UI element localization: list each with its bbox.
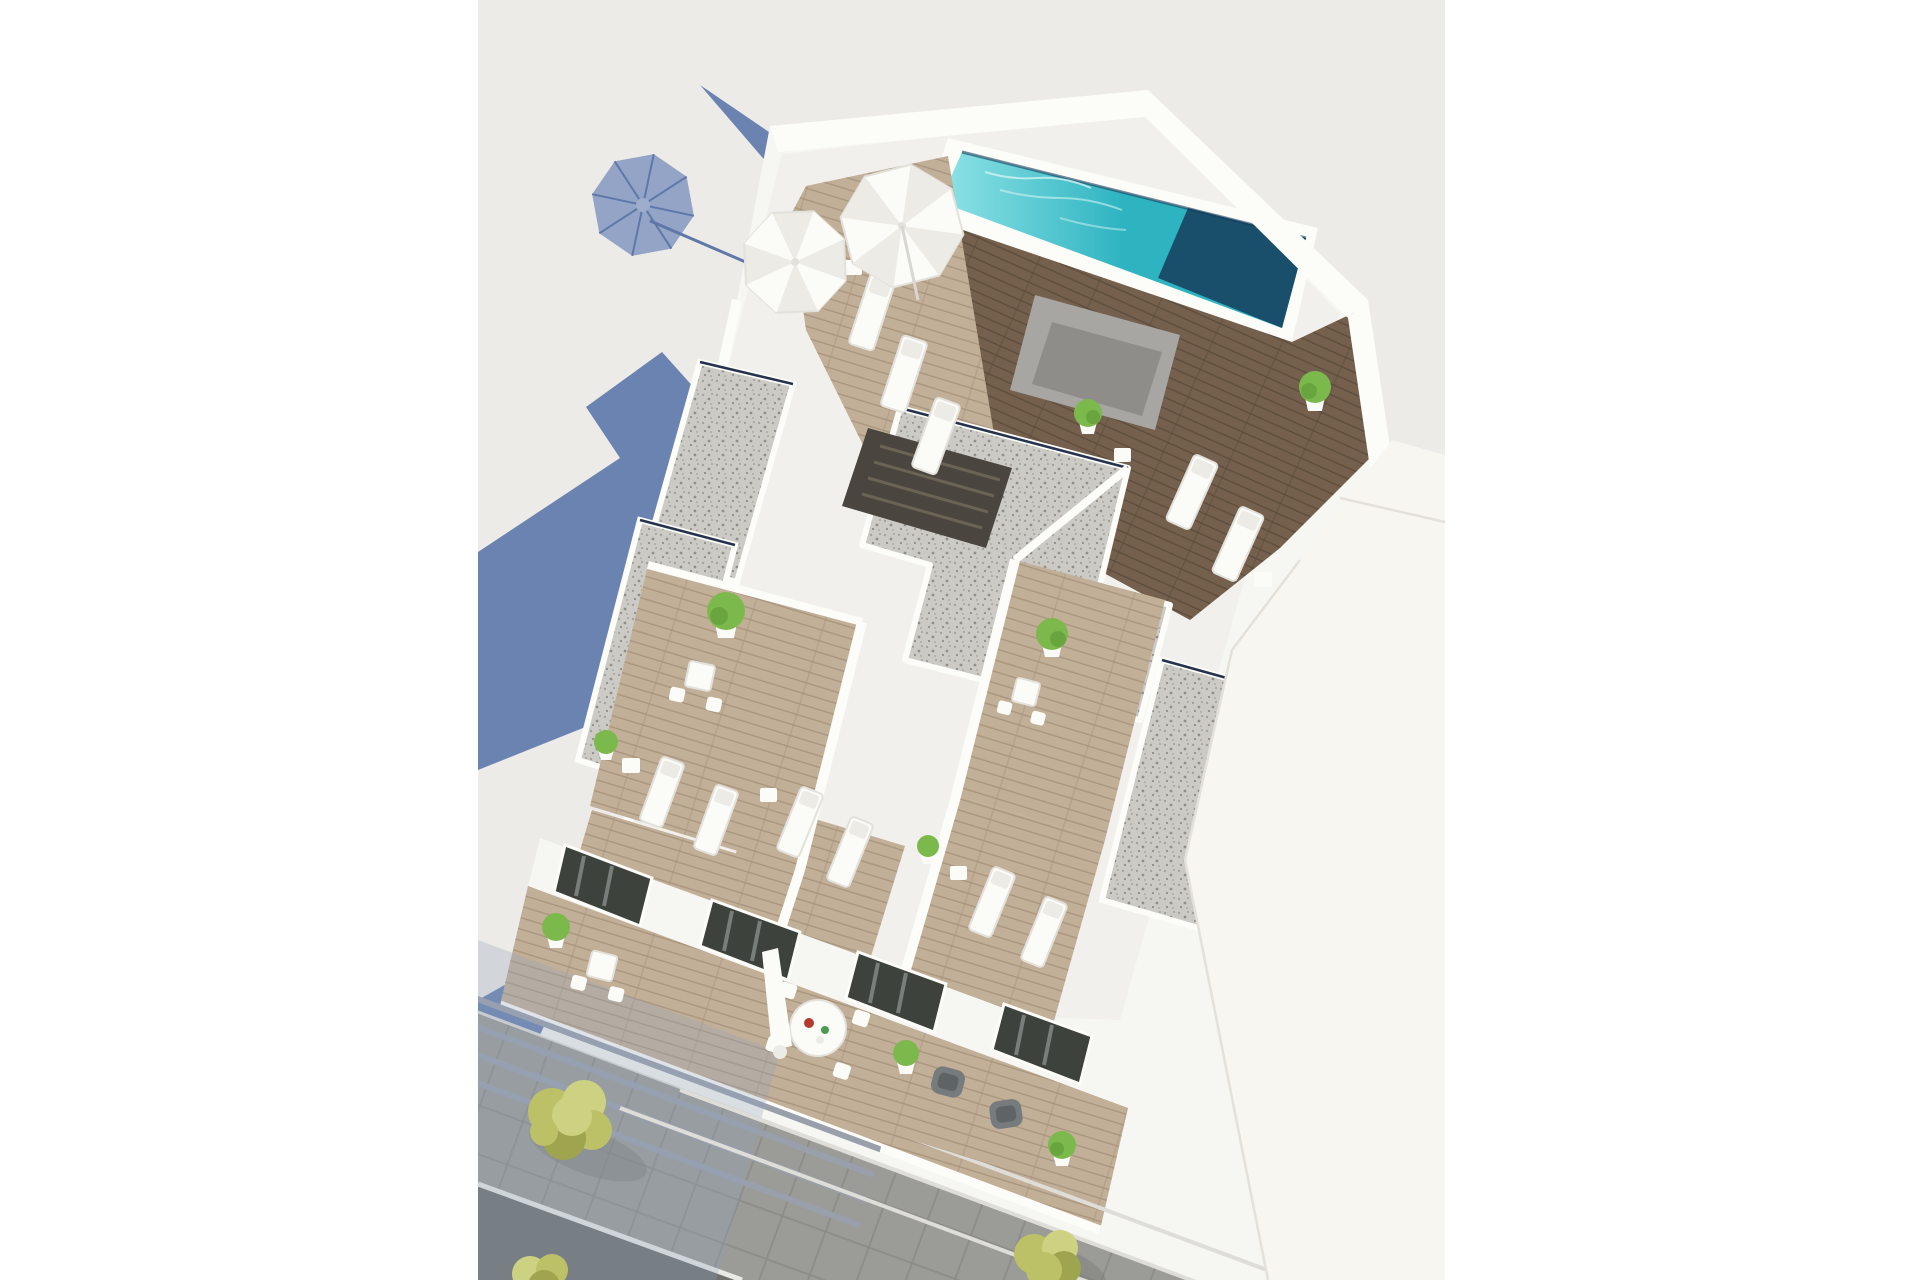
plant-foliage-shade	[710, 607, 728, 625]
side-table	[950, 866, 967, 880]
round-table-top	[790, 1000, 846, 1056]
white-plate	[816, 1036, 824, 1044]
bistro-table	[1011, 677, 1040, 706]
aerial-render	[0, 0, 1920, 1280]
plant-foliage-shade	[1050, 1142, 1064, 1156]
side-table	[622, 758, 640, 773]
armchair-seat	[995, 1105, 1017, 1124]
plant-foliage	[542, 913, 570, 941]
red-plate	[804, 1018, 814, 1028]
plant-foliage-shade	[1086, 410, 1100, 424]
gray-armchair	[988, 1098, 1024, 1130]
bistro-table	[685, 661, 716, 692]
plant-foliage	[917, 835, 939, 857]
plant-foliage-shade	[1301, 383, 1317, 399]
side-table	[1114, 448, 1131, 462]
tree-foliage	[530, 1118, 558, 1146]
parasol-base	[773, 1045, 787, 1059]
render-viewport	[0, 0, 1920, 1280]
side-table	[760, 788, 777, 802]
tree-foliage	[552, 1096, 592, 1136]
plant-foliage-shade	[1050, 631, 1066, 647]
bistro-table	[586, 950, 618, 982]
green-plate	[821, 1026, 829, 1034]
plant-foliage	[594, 730, 618, 754]
side-table	[1254, 572, 1272, 587]
plant-foliage	[893, 1040, 919, 1066]
